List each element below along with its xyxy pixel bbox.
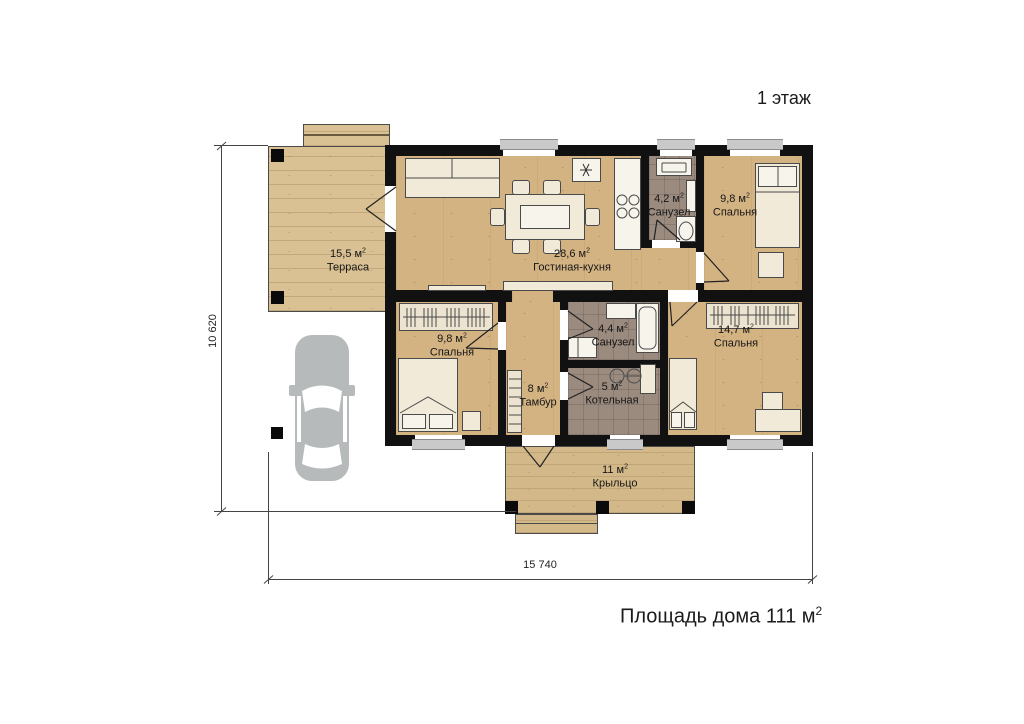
floor-plan-canvas: 1 этаж Площадь дома 111 м2 xyxy=(0,0,1024,724)
chair xyxy=(512,239,530,254)
window-bedroom1-sill xyxy=(727,139,783,150)
terrace-post-bottom xyxy=(271,291,284,304)
window-bedroom2-sill xyxy=(412,439,465,450)
dining-table-runner xyxy=(520,205,570,229)
room-label-hall: 8 м2 Тамбур xyxy=(519,382,556,409)
bed-pillow xyxy=(671,412,682,428)
porch-step-line xyxy=(516,523,597,524)
washbasin xyxy=(656,158,692,176)
chair xyxy=(490,208,505,226)
bed-pillows xyxy=(758,166,797,187)
porch-post-right xyxy=(682,501,695,514)
window-living-sill xyxy=(500,139,558,150)
total-area-text: Площадь дома 111 м xyxy=(620,606,816,628)
toilet xyxy=(676,216,696,242)
terrace-door-gap xyxy=(385,186,396,232)
window-boiler-sill xyxy=(607,439,643,450)
window-bedroom3-sill xyxy=(727,439,783,450)
bed-pillow xyxy=(684,412,695,428)
bed-pillow xyxy=(402,414,426,429)
chair xyxy=(585,208,600,226)
bedroom1-door-gap xyxy=(696,252,704,283)
nightstand xyxy=(758,252,784,278)
boiler-door-gap xyxy=(560,372,568,400)
hall-living-passage xyxy=(512,290,553,302)
room-label-bathroom2: 4,4 м2 Санузел xyxy=(592,322,635,349)
corridor-floor xyxy=(641,248,696,290)
total-area-label: Площадь дома 111 м2 xyxy=(620,604,822,629)
chair xyxy=(543,180,561,195)
room-label-bathroom1: 4,2 м2 Санузел xyxy=(648,192,691,219)
porch-door-gap xyxy=(522,435,555,446)
room-label-bedroom3: 14,7 м2 Спальня xyxy=(714,323,758,350)
bedroom2-door-gap xyxy=(498,322,506,350)
tv-stand xyxy=(503,281,613,291)
bathtub xyxy=(636,303,659,353)
window-bathroom1-sill xyxy=(657,139,695,150)
chair xyxy=(512,180,530,195)
sofa xyxy=(405,158,500,198)
desk xyxy=(755,409,801,432)
room-label-living-kitchen: 28,6 м2 Гостиная-кухня xyxy=(533,247,611,274)
terrace-step-line xyxy=(304,134,389,136)
room-terrace-floor xyxy=(268,146,390,312)
radiator xyxy=(428,285,486,291)
boiler-unit xyxy=(640,364,656,394)
room-label-porch: 11 м2 Крыльцо xyxy=(593,463,638,490)
room-label-terrace: 15,5 м2 Терраса xyxy=(327,247,369,274)
kitchen-counter xyxy=(614,158,641,250)
porch-steps xyxy=(515,514,598,534)
bathroom2-door-gap xyxy=(560,310,568,340)
page-title: 1 этаж xyxy=(757,88,811,109)
room-label-boiler: 5 м2 Котельная xyxy=(585,380,638,407)
bedroom3-door-gap xyxy=(668,290,698,302)
room-label-bedroom1: 9,8 м2 Спальня xyxy=(713,192,757,219)
bed-pillow xyxy=(429,414,453,429)
nightstand xyxy=(462,411,481,431)
washbasin xyxy=(606,303,636,319)
room-label-bedroom2: 9,8 м2 Спальня xyxy=(430,332,474,359)
kitchen-sink-unit xyxy=(572,158,601,182)
dimension-width-label: 15 740 xyxy=(523,559,557,571)
wardrobe xyxy=(399,303,493,331)
site-post-marker xyxy=(271,427,283,439)
terrace-post-top xyxy=(271,149,284,162)
porch-post-left xyxy=(505,501,518,514)
porch-post-middle xyxy=(596,501,609,514)
total-area-sup: 2 xyxy=(816,604,823,618)
dimension-height-label: 10 620 xyxy=(207,314,219,348)
